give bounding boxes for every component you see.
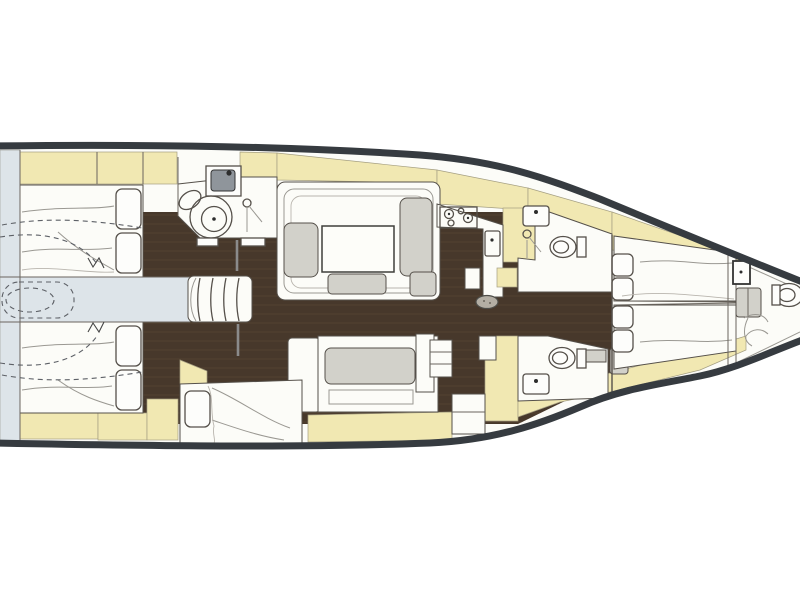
pillow [185, 391, 210, 427]
faucet [226, 170, 231, 175]
washbasin [523, 374, 549, 394]
sofa-cushion [400, 198, 432, 276]
aft-cabin-port [20, 185, 143, 277]
toilet [772, 284, 800, 307]
ottoman [328, 274, 386, 294]
settee-cushion [325, 348, 415, 384]
pillow [116, 326, 141, 366]
dinette-table [322, 226, 394, 272]
threshold [241, 238, 265, 246]
nav-seat [452, 394, 485, 434]
pillow [116, 189, 141, 229]
mast [476, 296, 498, 309]
step [584, 350, 606, 362]
saloon-dinette [277, 182, 440, 300]
pillow [612, 306, 633, 328]
saloon-settee [288, 334, 438, 412]
threshold [197, 238, 218, 246]
pillow [612, 330, 633, 352]
pillow [116, 233, 141, 273]
toilet [550, 237, 586, 258]
pillow [116, 370, 141, 410]
ottoman [410, 272, 436, 296]
washbasin [523, 206, 549, 226]
toilet [549, 348, 586, 369]
aft-cockpit-passage [0, 277, 190, 322]
aft-cabin-starboard [20, 322, 143, 413]
yacht-floorplan [0, 0, 800, 600]
mid-head-starboard [518, 336, 608, 401]
single-berth-cabin [180, 380, 302, 443]
pillow [612, 278, 633, 300]
sofa-cushion [284, 223, 318, 277]
pillow [612, 254, 633, 276]
yacht-floorplan-page [0, 0, 800, 600]
